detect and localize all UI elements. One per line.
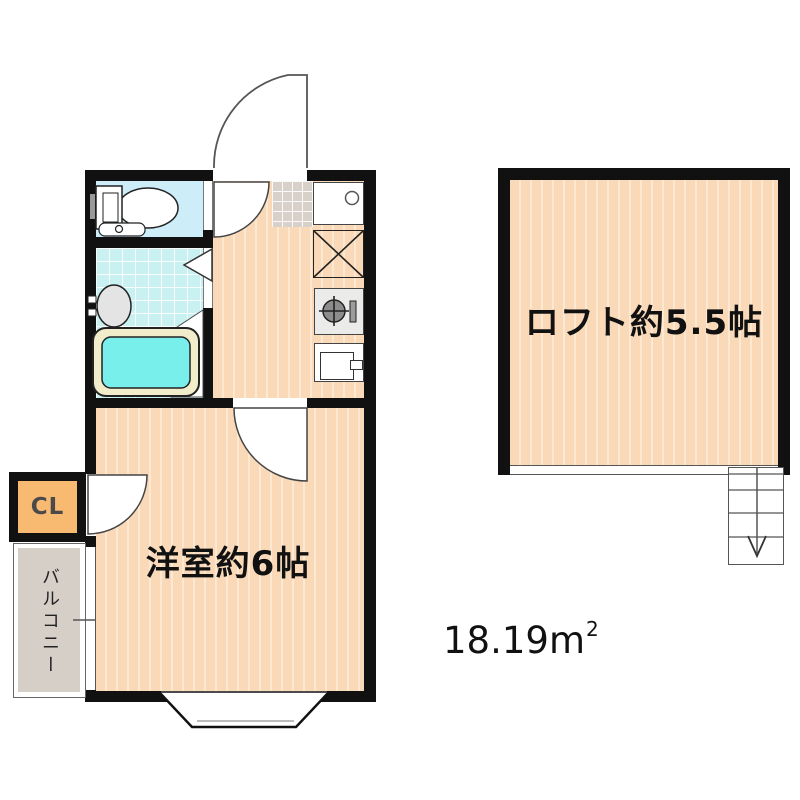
- area-unit: m: [549, 619, 585, 662]
- closet-label: CL: [31, 494, 65, 520]
- floor-plan: CL バルコニー: [0, 0, 800, 800]
- closet-doorway: [85, 474, 96, 536]
- total-area-label: 18.19m2: [443, 622, 598, 659]
- gas-stove: [314, 288, 364, 335]
- entrance-door-swing-icon: [214, 75, 307, 168]
- appliance-door: [320, 352, 354, 380]
- loft-ladder: [728, 467, 784, 565]
- area-value: 18.19: [443, 619, 549, 662]
- bathroom-floor: [96, 248, 203, 398]
- kitchen-appliance: [314, 343, 364, 382]
- genkan-tiles: [272, 181, 313, 227]
- bathroom-doorway: [203, 248, 213, 308]
- loft-label: ロフト約5.5帖: [510, 305, 778, 342]
- main-room-label: 洋室約6帖: [98, 546, 358, 583]
- appliance-handle: [350, 360, 363, 370]
- main-room-doorway: [233, 398, 307, 408]
- kitchen-counter: [313, 182, 364, 225]
- closet-box: CL: [9, 472, 86, 542]
- balcony-label: バルコニー: [35, 552, 63, 692]
- entrance-doorway: [213, 170, 307, 181]
- toilet-room-floor: [96, 181, 203, 237]
- refrigerator-space-x-box: [313, 230, 364, 278]
- toilet-doorway: [203, 181, 213, 230]
- area-superscript: 2: [586, 617, 599, 641]
